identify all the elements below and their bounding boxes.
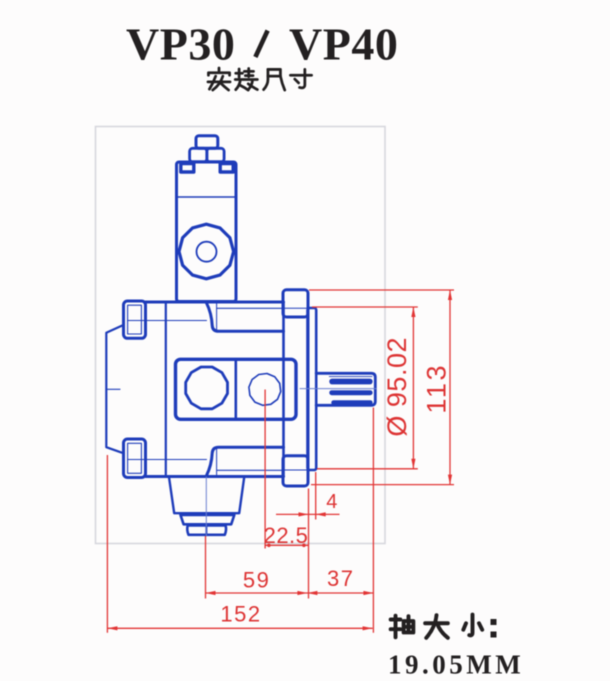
svg-text:4: 4 bbox=[326, 491, 339, 513]
svg-text:59: 59 bbox=[243, 568, 270, 593]
svg-text:22.5: 22.5 bbox=[264, 523, 309, 548]
svg-text:VP30: VP30 bbox=[126, 19, 235, 70]
svg-text:113: 113 bbox=[422, 363, 452, 414]
svg-text:Ø 95.02: Ø 95.02 bbox=[382, 337, 412, 437]
svg-text:152: 152 bbox=[220, 602, 261, 627]
svg-text:37: 37 bbox=[327, 566, 354, 591]
svg-text:VP40: VP40 bbox=[289, 19, 398, 70]
svg-text:19.05MM: 19.05MM bbox=[388, 650, 524, 680]
